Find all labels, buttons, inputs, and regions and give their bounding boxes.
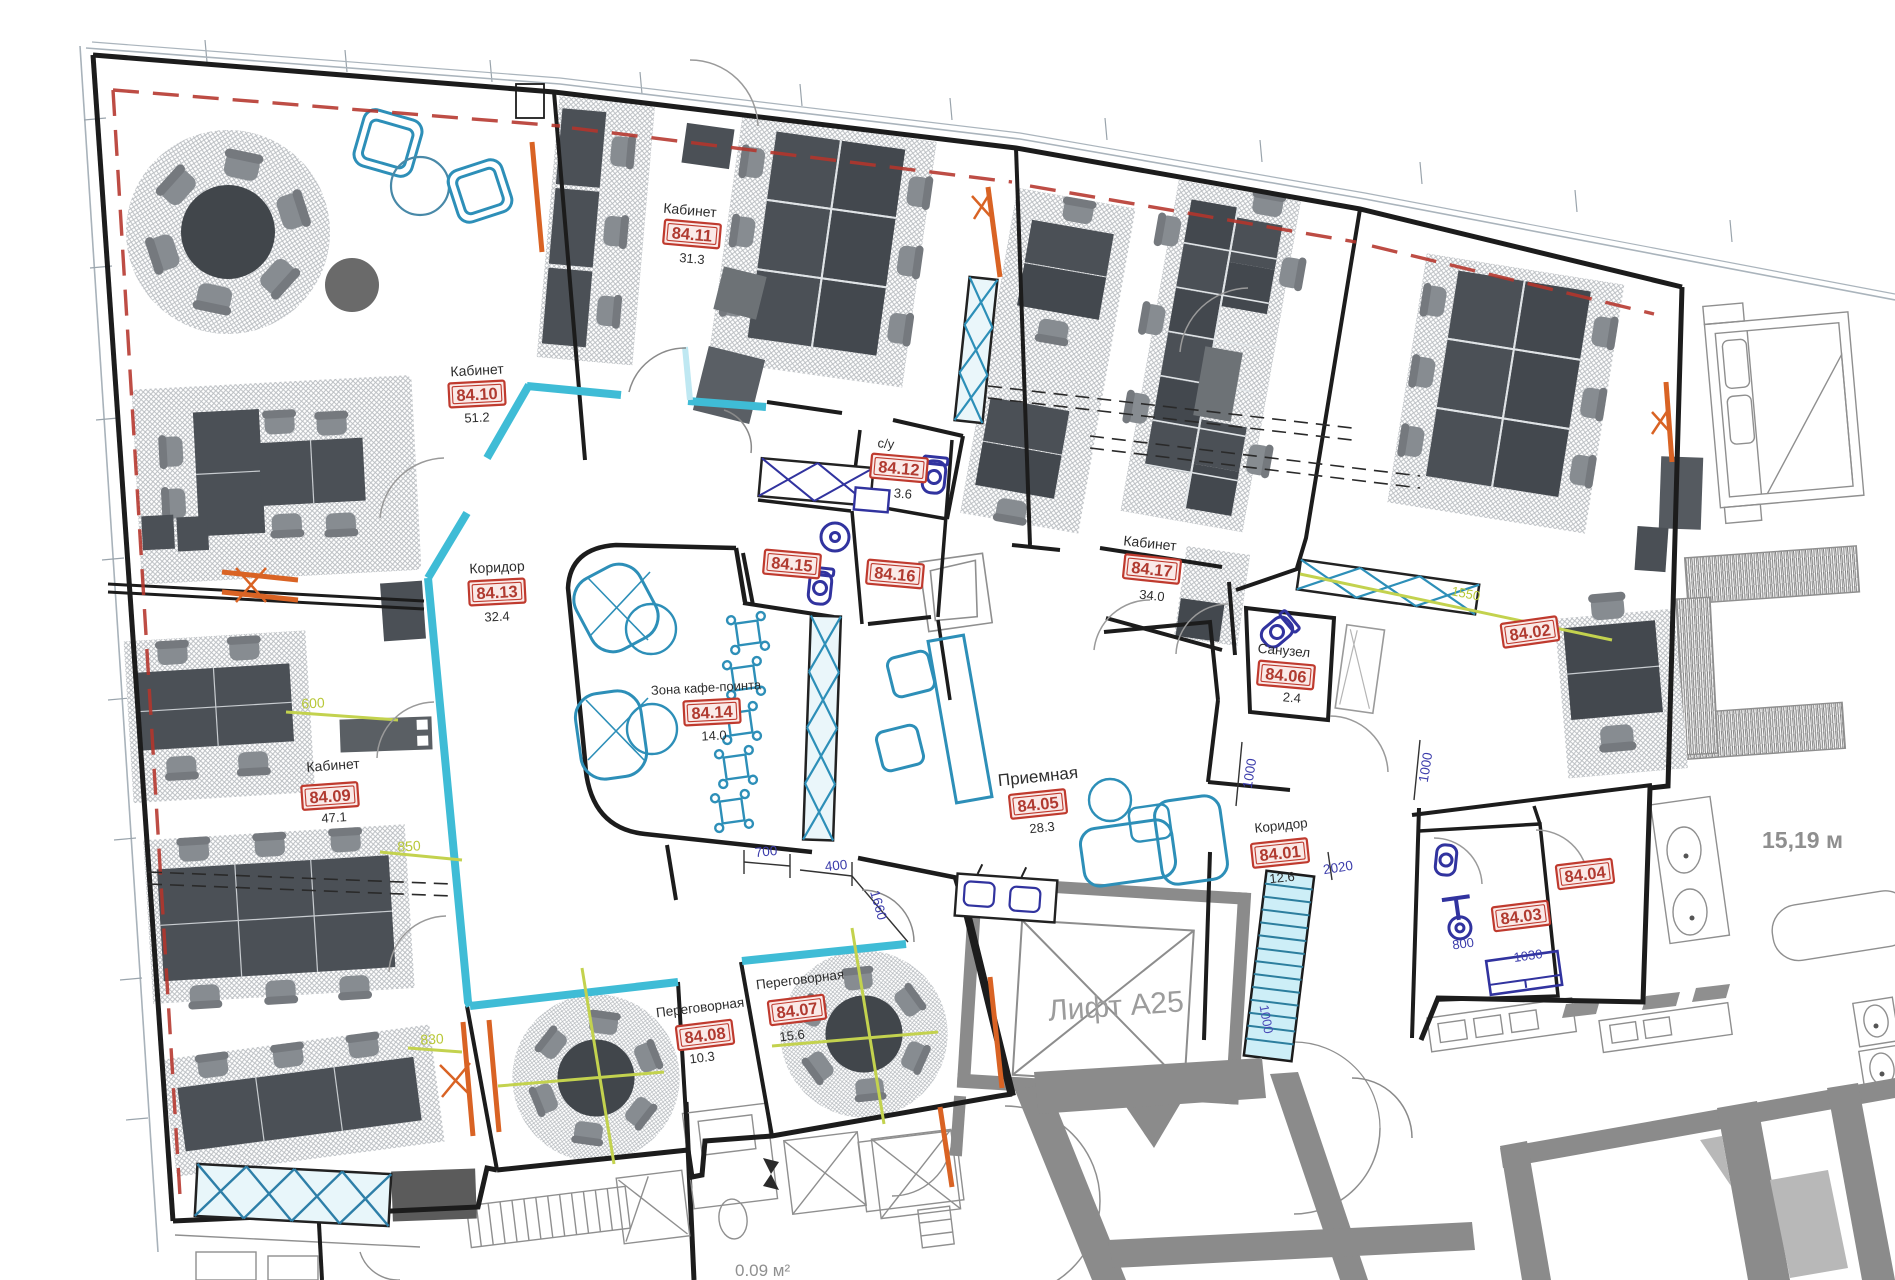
svg-text:15.6: 15.6 <box>779 1027 806 1045</box>
svg-text:84.12: 84.12 <box>878 458 921 480</box>
svg-text:0.09 м²: 0.09 м² <box>735 1261 790 1280</box>
svg-text:с/у: с/у <box>877 435 895 451</box>
svg-text:10.3: 10.3 <box>689 1049 716 1067</box>
svg-text:84.10: 84.10 <box>456 385 498 405</box>
svg-text:51.2: 51.2 <box>464 409 490 425</box>
svg-text:Кабинет: Кабинет <box>450 361 505 380</box>
svg-text:850: 850 <box>397 837 421 854</box>
svg-text:47.1: 47.1 <box>321 809 347 826</box>
svg-text:2.4: 2.4 <box>1282 689 1301 706</box>
svg-text:600: 600 <box>301 694 325 711</box>
svg-text:84.14: 84.14 <box>691 703 734 723</box>
svg-text:84.16: 84.16 <box>874 564 917 586</box>
svg-text:3.6: 3.6 <box>893 485 912 502</box>
svg-text:28.3: 28.3 <box>1029 819 1056 837</box>
svg-text:Коридор: Коридор <box>469 558 525 577</box>
svg-text:84.09: 84.09 <box>309 787 351 808</box>
svg-text:84.06: 84.06 <box>1265 665 1308 687</box>
svg-text:12.6: 12.6 <box>1269 869 1296 887</box>
svg-text:15,19 м: 15,19 м <box>1762 827 1843 853</box>
svg-text:400: 400 <box>824 857 848 874</box>
svg-text:34.0: 34.0 <box>1139 587 1166 605</box>
svg-text:800: 800 <box>1451 935 1475 953</box>
svg-text:31.3: 31.3 <box>679 250 706 267</box>
svg-text:84.15: 84.15 <box>771 554 814 576</box>
svg-text:84.13: 84.13 <box>476 583 518 603</box>
svg-text:32.4: 32.4 <box>484 608 510 624</box>
svg-text:830: 830 <box>420 1030 444 1047</box>
svg-text:14.0: 14.0 <box>701 727 727 743</box>
svg-text:700: 700 <box>754 843 778 860</box>
svg-text:84.11: 84.11 <box>671 224 713 245</box>
